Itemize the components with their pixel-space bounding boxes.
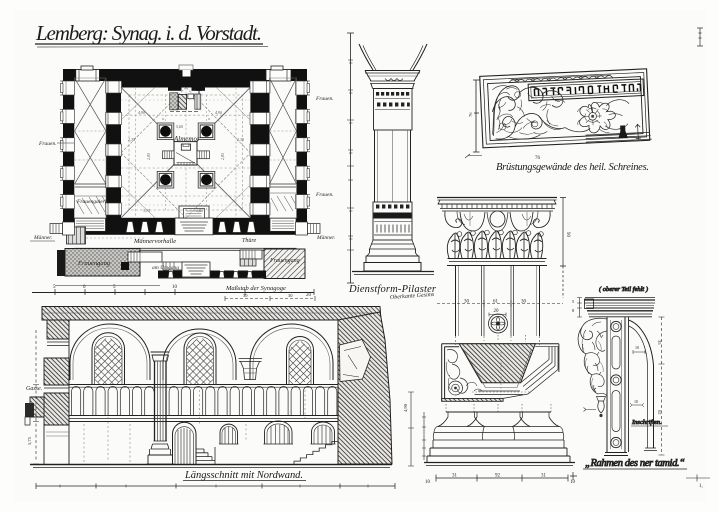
svg-text:30: 30 (243, 293, 248, 298)
svg-text:30: 30 (464, 300, 470, 305)
svg-text:Männer.: Männer. (33, 235, 52, 241)
svg-text:76: 76 (468, 112, 473, 117)
svg-text:o: o (162, 116, 164, 121)
svg-text:10: 10 (172, 285, 178, 290)
svg-text:am Umgang: am Umgang (152, 265, 179, 271)
svg-text:10: 10 (635, 345, 639, 350)
svg-text:Thüre: Thüre (242, 238, 256, 244)
svg-text:o: o (208, 116, 210, 121)
svg-text:Gasse.: Gasse. (26, 386, 42, 392)
svg-text:Frauengang: Frauengang (77, 260, 111, 267)
svg-text:Frauengalerie: Frauengalerie (76, 199, 109, 205)
svg-text:92: 92 (495, 474, 501, 479)
svg-text:Frauen.: Frauen. (38, 141, 57, 147)
svg-text:Männer.: Männer. (316, 235, 335, 241)
svg-text:Brüstungsgewände des heil. Sch: Brüstungsgewände des heil. Schreines. (496, 162, 649, 173)
svg-text:10: 10 (570, 480, 576, 485)
svg-text:Frauengang: Frauengang (269, 258, 300, 264)
svg-text:Männervorhalle: Männervorhalle (133, 238, 176, 245)
svg-text:10: 10 (634, 399, 638, 404)
svg-text:35: 35 (657, 340, 662, 345)
svg-text:10: 10 (425, 480, 431, 485)
svg-text:31: 31 (541, 474, 547, 479)
svg-text:Inschriften.: Inschriften. (631, 419, 662, 426)
svg-text:90: 90 (565, 232, 570, 238)
svg-text:„Rahmen des ner tamid.“: „Rahmen des ner tamid.“ (585, 458, 685, 469)
svg-text:62: 62 (657, 410, 662, 415)
svg-text:30: 30 (288, 293, 293, 298)
svg-text:20: 20 (494, 309, 500, 314)
svg-text:Frauen.: Frauen. (315, 192, 334, 198)
svg-text:( oberer Teil fehlt ): ( oberer Teil fehlt ) (599, 286, 648, 293)
svg-text:1,: 1, (699, 484, 703, 489)
svg-text:Maßstab der Synagoge: Maßstab der Synagoge (225, 285, 286, 292)
svg-text:31: 31 (452, 474, 458, 479)
svg-text:30: 30 (521, 300, 527, 305)
svg-text:61: 61 (493, 300, 499, 305)
svg-text:Längsschnitt mit Nordwand.: Längsschnitt mit Nordwand. (184, 470, 303, 481)
svg-text:76: 76 (535, 156, 541, 161)
svg-text:Frauen.: Frauen. (315, 96, 334, 102)
svg-text:20: 20 (306, 293, 312, 298)
svg-text:Lemberg: Synag. i. d. Vorstadt: Lemberg: Synag. i. d. Vorstadt. (35, 21, 262, 45)
